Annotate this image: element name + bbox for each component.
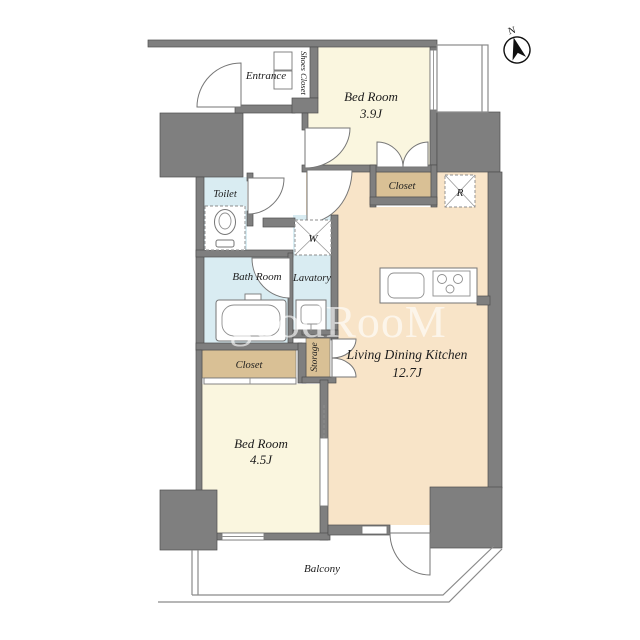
bedroom-north-size: 3.9J [359,106,383,121]
door-arc-balcony [390,533,430,575]
floor-plan-page: goodRooM Entrance Shoes Closet Bed Room … [0,0,640,640]
north-label: N [507,25,517,37]
service-balcony [437,45,488,112]
storage-label: Storage [310,342,320,372]
bedroom-north-label: Bed Room [344,89,398,104]
floor-plan: goodRooM Entrance Shoes Closet Bed Room … [0,0,640,640]
balcony-label: Balcony [304,563,340,575]
entrance-label: Entrance [245,70,286,82]
compass-icon: N [498,22,533,65]
toilet-label: Toilet [213,189,238,200]
closet-north-label: Closet [389,181,417,192]
watermark: goodRooM [229,296,447,347]
closet-south-label: Closet [236,360,264,371]
door-arc-entrance [197,63,241,107]
shoes-closet-label: Shoes Closet [299,51,309,95]
shoes-closet-bifold-door [274,52,292,70]
lavatory-label: Lavatory [292,273,331,284]
bedroom-south-label: Bed Room [234,436,288,451]
bath-label: Bath Room [232,271,281,283]
refrigerator-mark: R [456,187,464,199]
balcony-door-threshold [362,526,387,534]
sliding-door-bedroom-south [320,438,328,506]
ldk-size: 12.7J [392,365,423,380]
washer-mark: W [308,233,318,245]
bedroom-south-size: 4.5J [250,452,273,467]
door-arc-toilet [248,178,284,214]
ldk-label: Living Dining Kitchen [346,347,468,362]
